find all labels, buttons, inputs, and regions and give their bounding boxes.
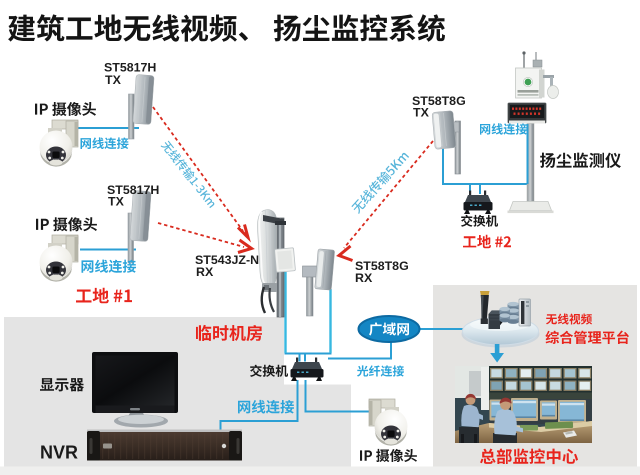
- svg-text:RX: RX: [355, 271, 373, 285]
- svg-text:TX: TX: [108, 195, 125, 209]
- svg-text:TX: TX: [105, 73, 122, 87]
- svg-text:TX: TX: [413, 105, 430, 119]
- svg-text:RX: RX: [196, 265, 214, 279]
- svg-text:NVR: NVR: [40, 443, 78, 463]
